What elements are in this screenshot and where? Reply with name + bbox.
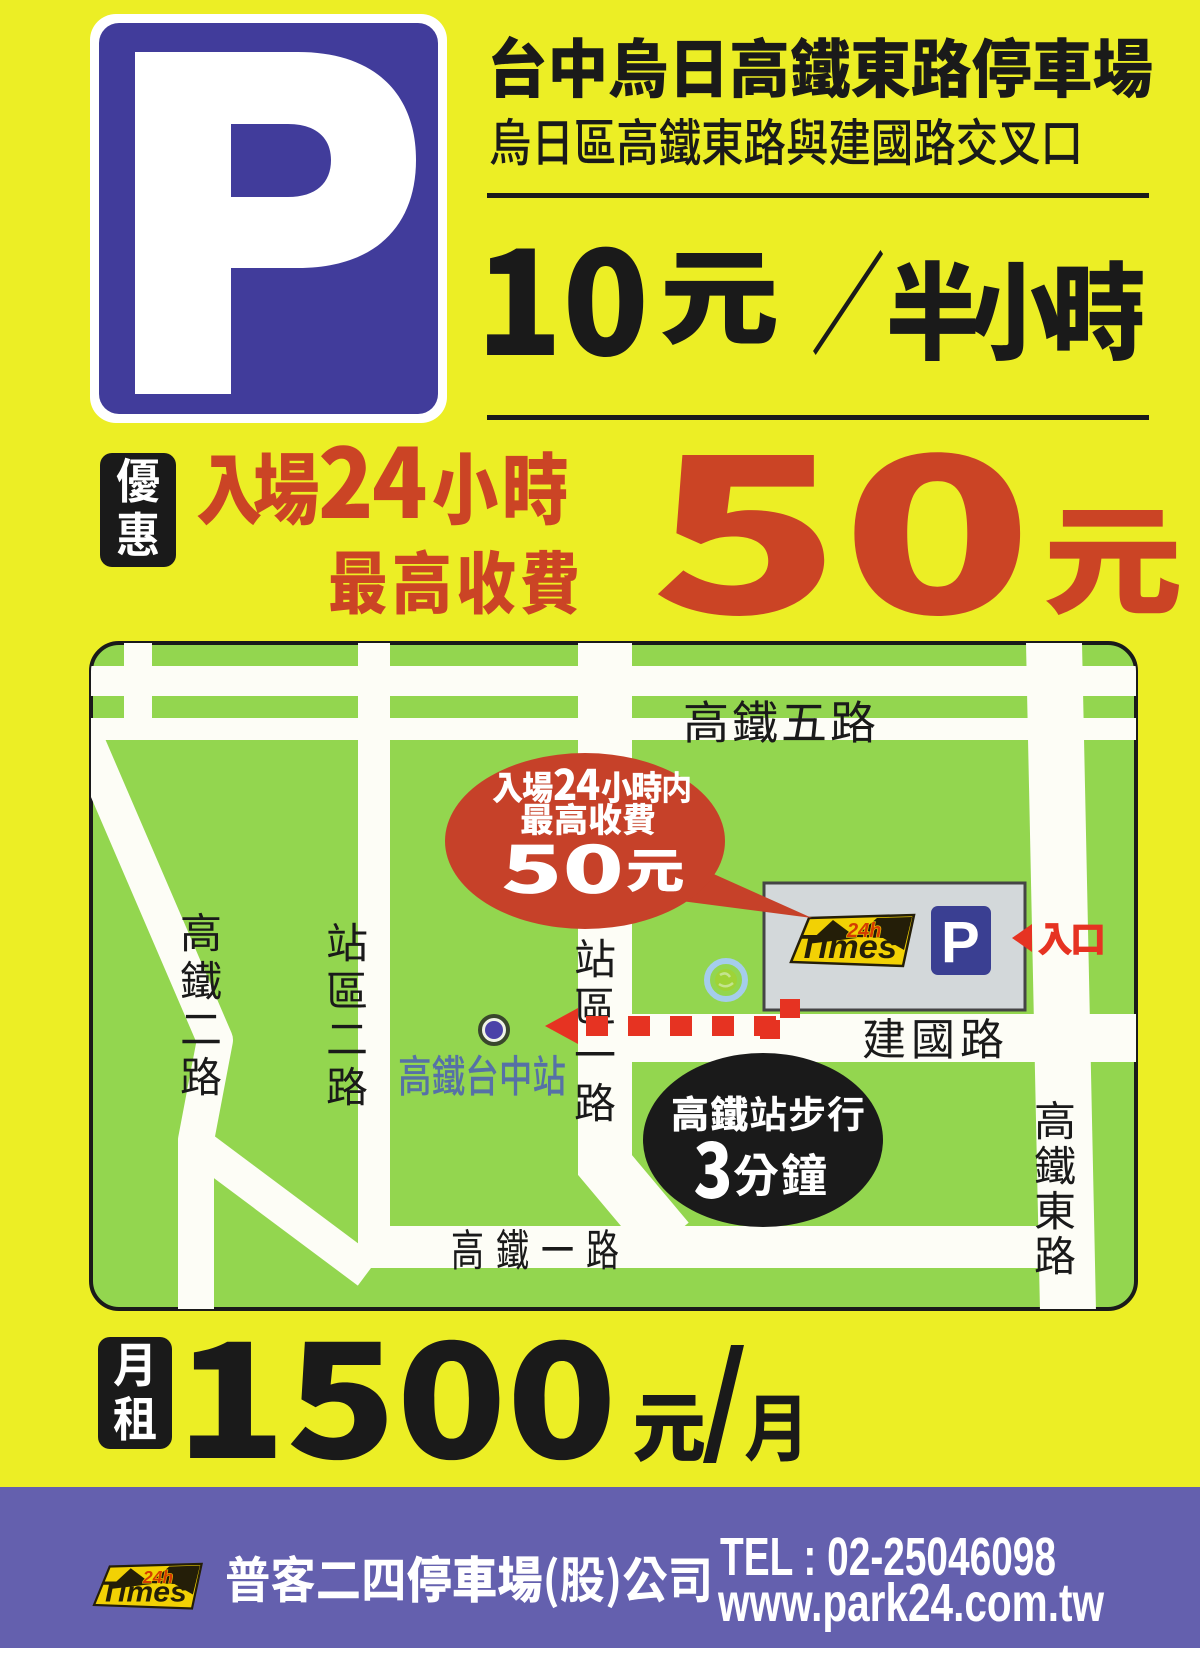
svg-text:P: P bbox=[941, 910, 980, 975]
svg-text:24h: 24h bbox=[142, 1567, 173, 1587]
svg-text:24h: 24h bbox=[846, 920, 881, 942]
svg-text:www.park24.com.tw: www.park24.com.tw bbox=[717, 1573, 1104, 1633]
